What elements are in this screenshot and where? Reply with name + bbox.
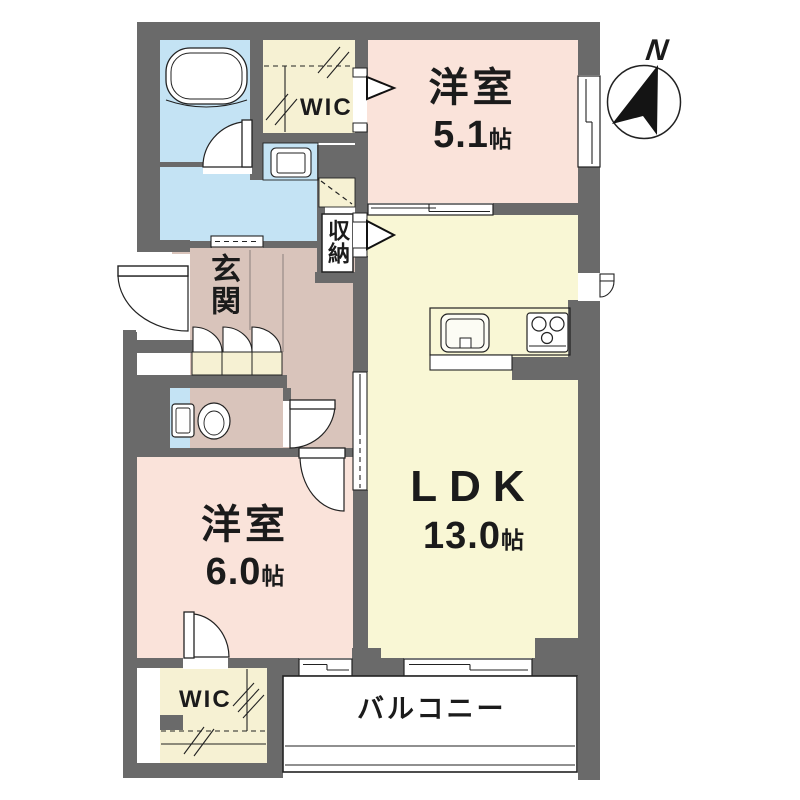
room-label-bedroom-upper: 洋室 5.1帖 — [365, 68, 580, 154]
room-size-unit: 帖 — [501, 527, 524, 553]
room-label-ldk: LDK 13.0帖 — [367, 465, 580, 555]
room-size-unit: 帖 — [489, 126, 512, 152]
wic-lower-door — [183, 612, 229, 669]
room-label-balcony: バルコニー — [357, 696, 506, 723]
front-door — [118, 252, 188, 332]
compass-north-label: N — [644, 36, 670, 66]
room-size: 5.1帖 — [433, 116, 512, 154]
storage-opening-arrow — [367, 221, 394, 249]
room-label-wic-lower: WIC — [179, 688, 232, 712]
toilet-icon — [172, 403, 230, 439]
room-label-bedroom-lower: 洋室 6.0帖 — [137, 505, 353, 591]
bathroom-door — [203, 120, 252, 174]
room-label-storage: 収納 — [326, 219, 348, 265]
kitchen-counter — [430, 308, 570, 370]
service-door — [578, 273, 614, 301]
gas-stove-icon — [527, 313, 568, 352]
window-ldk — [404, 659, 532, 676]
balcony-outline — [283, 676, 577, 772]
room-size-value: 5.1 — [433, 114, 489, 156]
room-size-value: 6.0 — [206, 551, 262, 593]
window-bedroom-lower — [299, 659, 352, 676]
window-bedroom-upper — [578, 76, 600, 167]
shoe-cabinet — [192, 327, 282, 375]
room-name: LDK — [410, 465, 536, 509]
sliding-door-bedroom-upper — [368, 204, 493, 215]
room-size-unit: 帖 — [261, 563, 284, 589]
sliding-door-hall-ldk — [353, 372, 367, 490]
toilet-door — [283, 400, 335, 448]
hall-closet — [319, 178, 355, 207]
room-name: 洋室 — [201, 505, 289, 545]
compass-north-icon — [608, 65, 681, 139]
sliding-door-washroom — [211, 236, 263, 247]
room-label-wic-upper: WIC — [300, 96, 353, 120]
room-name: 洋室 — [429, 68, 517, 108]
washing-machine-icon — [263, 143, 318, 180]
room-size: 13.0帖 — [423, 517, 524, 555]
bathtub-icon — [166, 48, 247, 107]
room-size-value: 13.0 — [423, 515, 501, 557]
kitchen-sink-icon — [441, 314, 489, 352]
room-size: 6.0帖 — [206, 553, 285, 591]
bedroom-lower-door — [299, 448, 345, 511]
room-label-entrance: 玄関 — [207, 253, 237, 317]
floor-plan: 洋室 5.1帖 LDK 13.0帖 洋室 6.0帖 玄関 収納 WIC WIC … — [0, 0, 800, 800]
